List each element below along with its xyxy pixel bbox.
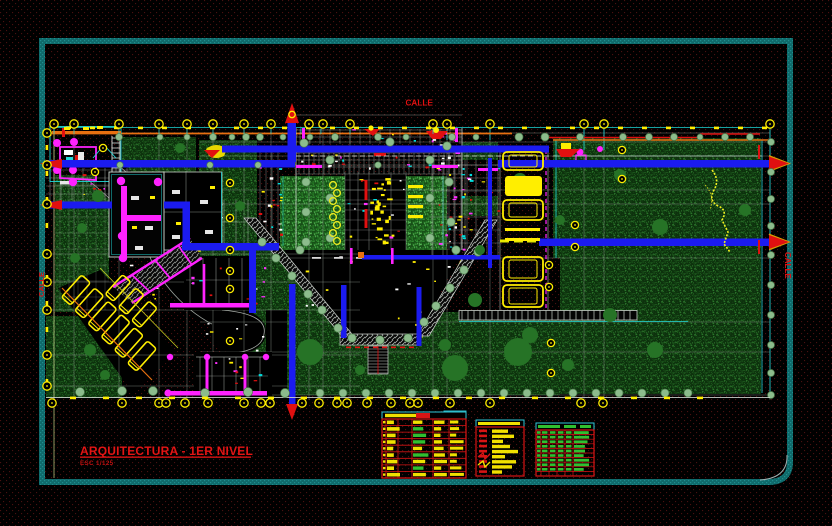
svg-text:ARQUITECTURA - 1ER NIVEL: ARQUITECTURA - 1ER NIVEL: [80, 444, 253, 458]
svg-text:CALLE: CALLE: [406, 99, 434, 108]
svg-text:CALLE: CALLE: [783, 252, 792, 279]
svg-text:CALLE: CALLE: [37, 272, 46, 297]
svg-text:ESC 1/125: ESC 1/125: [80, 460, 114, 467]
